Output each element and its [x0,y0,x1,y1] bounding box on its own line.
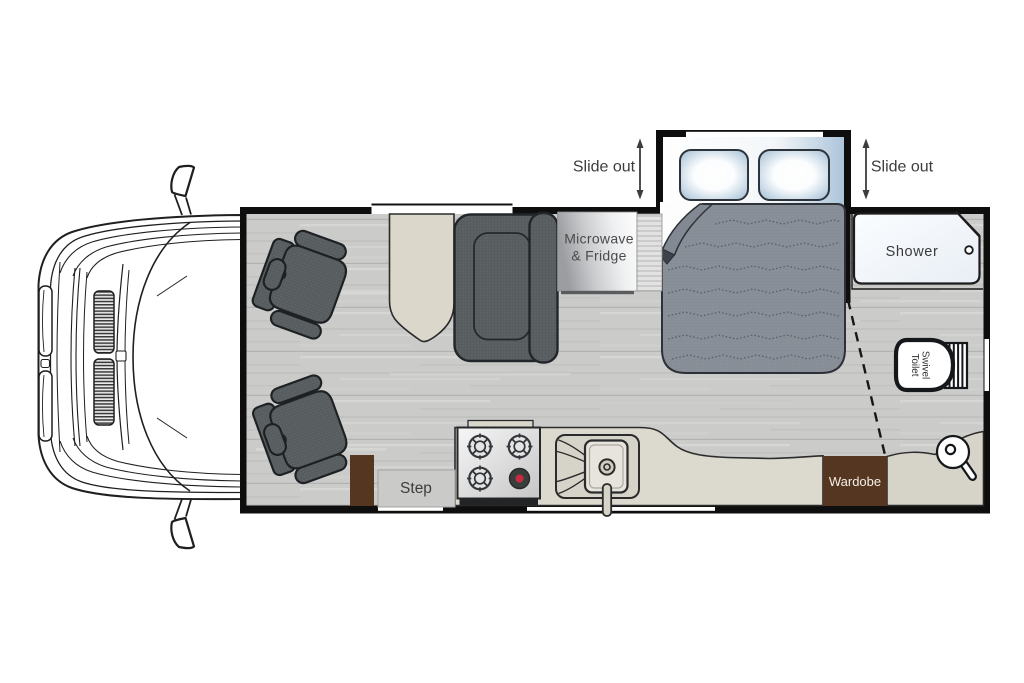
svg-text:Microwave: Microwave [564,231,634,247]
svg-text:Shower: Shower [886,244,939,260]
svg-text:& Fridge: & Fridge [571,248,626,264]
svg-text:Toilet: Toilet [909,354,920,377]
svg-text:Wardobe: Wardobe [829,474,881,489]
svg-text:Step: Step [400,480,432,497]
svg-text:Swivel: Swivel [920,351,931,379]
svg-text:Slide out: Slide out [871,159,934,176]
svg-text:Slide out: Slide out [573,159,636,176]
